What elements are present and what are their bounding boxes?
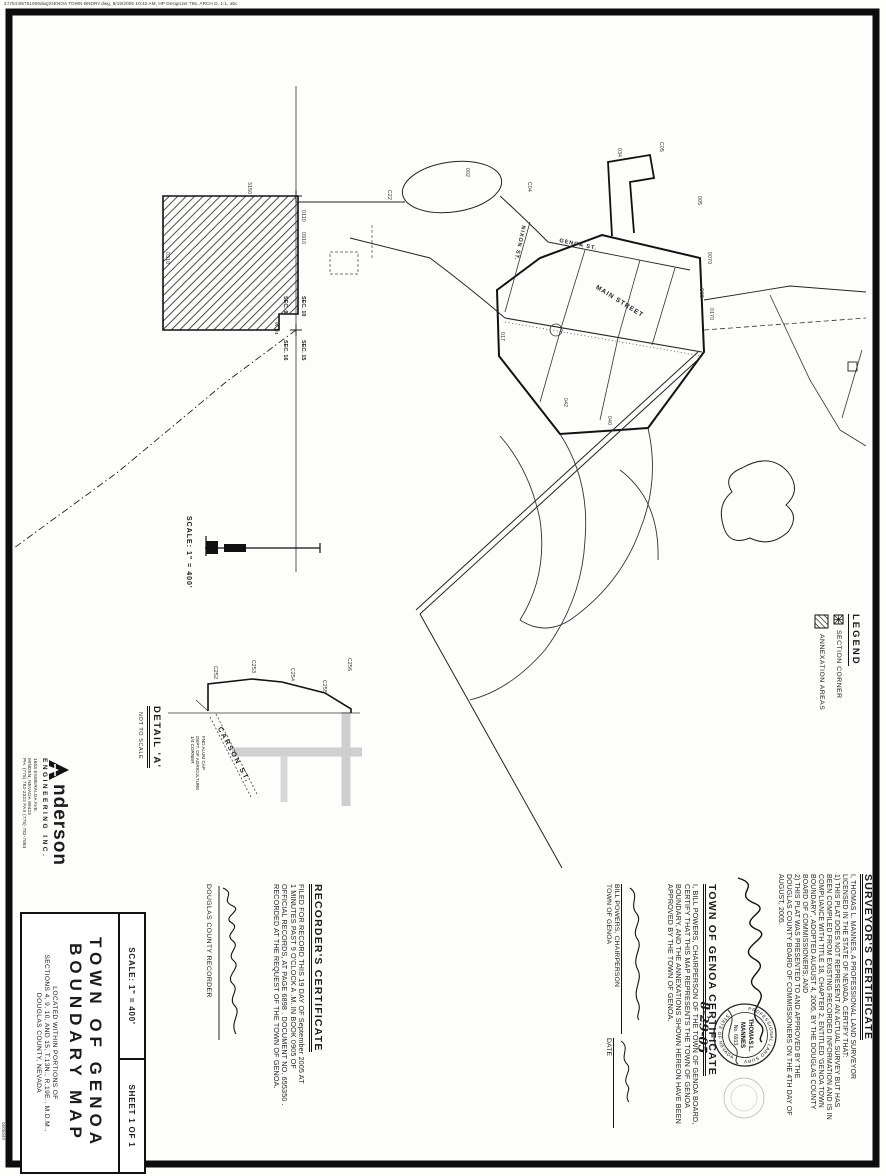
course-tag: 034 xyxy=(616,148,622,157)
date-label: DATE xyxy=(604,1038,614,1128)
legend: LEGEND SECTION CORNER ANNEXATION AREAS xyxy=(814,614,866,722)
date-scribble xyxy=(617,1038,633,1108)
legend-item-section-corner: SECTION CORNER xyxy=(833,614,844,722)
subdivision-roads xyxy=(470,428,658,700)
certificate-line: DOUGLAS COUNTY BOARD OF COMMISSIONERS ON… xyxy=(784,874,792,1172)
certificate-line: RECORDED AT THE REQUEST OF THE TOWN OF G… xyxy=(271,884,280,1172)
west-boundary-road xyxy=(14,330,296,548)
east-road-dashed xyxy=(704,318,866,330)
oval-track xyxy=(399,155,505,218)
faint-stamp xyxy=(722,1076,766,1125)
certificate-line: I, THOMAS L. MANNES, A PROFESSIONAL LAND… xyxy=(848,874,856,1172)
firm-address-line: MINDEN, NEVADA 89423 xyxy=(27,758,33,912)
detail-a-scale: NOT TO SCALE xyxy=(137,712,143,759)
course-tag: 0310 xyxy=(164,252,170,264)
detail-course-tag: C253 xyxy=(250,660,256,673)
course-tag: C09 xyxy=(698,288,704,298)
course-tag: 042 xyxy=(562,398,568,407)
map-subtitle-line: DOUGLAS COUNTY, NEVADA xyxy=(35,954,43,1131)
detail-course-tag: C256 xyxy=(346,658,352,671)
note-line: DEPT. OF AGRICULTURE xyxy=(195,736,201,816)
east-hill-roads xyxy=(770,295,866,446)
course-tag: 3150 xyxy=(246,182,252,194)
annexation-parcel xyxy=(163,196,298,330)
highway-south xyxy=(420,614,562,868)
recorder-certificate-title: RECORDER'S CERTIFICATE xyxy=(309,884,322,1052)
recorder-signature xyxy=(215,884,245,1044)
detail-a-title: DETAIL 'A' xyxy=(147,706,162,768)
legend-title: LEGEND xyxy=(848,614,861,666)
section-label-15: SEC. 15 xyxy=(300,340,306,360)
stamp-number: No. 6913 xyxy=(732,1025,738,1046)
certificate-line: 1) THIS PLAT DOES NOT REPRESENT AN ACTUA… xyxy=(832,874,840,1172)
stamp-name-2: MANNES xyxy=(739,1022,745,1048)
certificate-line: CERTIFY THAT THIS MAP REPRESENTS THE TOW… xyxy=(682,884,691,1174)
map-subtitle-line: LOCATED WITHIN PORTIONS OF xyxy=(51,954,59,1131)
note-line: FND ALUM CAP xyxy=(200,736,206,816)
town-boundary-north-leg xyxy=(608,155,654,236)
detail-course-tag: C254 xyxy=(289,668,295,681)
map-sheet: 2:\751\05751006dwg\GENOA TOWN BNDRY.dwg,… xyxy=(0,0,886,1176)
certificate-line: OFFICIAL RECORDS, AT PAGE 6898 . DOCUMEN… xyxy=(280,884,289,1172)
course-tag: 0170 xyxy=(708,308,714,320)
course-tag: 017 xyxy=(499,332,505,341)
section-label-9: SEC. 9 xyxy=(282,296,288,313)
map-subtitle: LOCATED WITHIN PORTIONS OF SECTIONS 4, 9… xyxy=(35,954,59,1131)
legend-item-label: SECTION CORNER xyxy=(835,630,842,699)
section-label-10: SEC. 10 xyxy=(300,296,306,316)
main-street-centerline xyxy=(505,322,702,356)
main-street-line xyxy=(505,318,702,352)
recorder-certificate: RECORDER'S CERTIFICATE FILED FOR RECORD … xyxy=(204,884,322,1172)
firm-address-line: PH. (775) 782-2322 FAX (775) 782-7084 xyxy=(21,758,27,912)
course-tag: 0070 xyxy=(706,252,712,264)
east-structure xyxy=(848,362,857,371)
course-tag: 040 xyxy=(606,416,612,425)
sheet-number: SHEET 1 OF 1 xyxy=(120,1060,144,1172)
course-tag: C22 xyxy=(386,190,392,200)
chairperson-signer-name: BILL POWERS, CHAIRPERSON TOWN OF GENOA xyxy=(604,884,622,1034)
title-block-strip: SCALE: 1" = 400' SHEET 1 OF 1 xyxy=(118,914,144,1172)
firm-address: 1603 ESMERALDA AVE. MINDEN, NEVADA 89423… xyxy=(21,758,38,912)
highway-line-2 xyxy=(416,352,698,610)
annexation-hatch-icon xyxy=(814,614,829,629)
firm-logo-icon xyxy=(48,758,70,782)
certificate-line: BEEN COMPILED FROM EXISTING RECORDED INF… xyxy=(824,874,832,1172)
map-scale: SCALE: 1" = 400' xyxy=(120,914,144,1060)
certificate-line: 1 MINUTES PAST 9 O'CLOCK A .M. IN BOOK 0… xyxy=(288,884,297,1172)
firm-tagline: ENGINEERING INC. xyxy=(41,758,48,912)
west-road xyxy=(350,238,505,318)
signer-line: BILL POWERS, CHAIRPERSON xyxy=(612,884,620,1034)
certificate-line: COMPLIANCE WITH TITLE 18, CHAPTER 2, ENT… xyxy=(816,874,824,1172)
course-tag: 005 xyxy=(696,196,702,205)
detail-course-tag: C252 xyxy=(212,666,218,679)
certificate-line: BOUNDARY, AND THE ANNEXATIONS SHOWN HERE… xyxy=(674,884,683,1174)
detail-course-tag: C255 xyxy=(321,680,327,693)
scale-bar xyxy=(205,536,320,556)
map-title-line: BOUNDARY MAP xyxy=(66,937,86,1149)
chairperson-signature xyxy=(625,884,643,1024)
course-tag: C04 xyxy=(526,182,532,192)
section-corner-icon xyxy=(833,614,844,625)
certificate-line: 2) THIS PLAT WAS PRESENTED TO AND APPROV… xyxy=(792,874,800,1172)
course-tag: 002 xyxy=(464,168,470,177)
east-road xyxy=(704,286,866,300)
surveyor-stamp: PROFESSIONAL LAND SURVEYOR STATE OF NEVA… xyxy=(712,1002,778,1073)
map-title-line: TOWN OF GENOA xyxy=(86,937,106,1149)
certificate-line: LICENSED IN THE STATE OF NEVADA, CERTIFY… xyxy=(840,874,848,1172)
stamp-name-1: THOMAS L. xyxy=(747,1019,753,1052)
map-title: TOWN OF GENOA BOUNDARY MAP xyxy=(66,937,106,1149)
firm-block: nderson ENGINEERING INC. 1603 ESMERALDA … xyxy=(21,758,70,912)
west-parcels xyxy=(330,225,372,274)
legend-item-annexation: ANNEXATION AREAS xyxy=(814,614,829,722)
course-tag: 0110 xyxy=(300,210,306,222)
scale-label: SCALE: 1" = 400' xyxy=(185,516,192,589)
pond-outline xyxy=(721,461,794,542)
surveyor-certificate-title: SURVEYOR'S CERTIFICATE xyxy=(860,874,872,1040)
course-tag: 0910 xyxy=(300,232,306,244)
certificate-line: BOUNDARY', ADOPTED AUGUST 4, 2005, BY TH… xyxy=(808,874,816,1172)
title-block: SCALE: 1" = 400' SHEET 1 OF 1 TOWN OF GE… xyxy=(20,912,146,1174)
note-line: 1/4 CORNER xyxy=(189,736,195,816)
certificate-line: BOARD OF COMMISSIONERS; AND xyxy=(800,874,808,1172)
legend-item-label: ANNEXATION AREAS xyxy=(818,634,825,710)
highway-line-1 xyxy=(420,356,702,614)
course-tag: C05 xyxy=(658,142,664,152)
detail-monument-note: FND ALUM CAP DEPT. OF AGRICULTURE 1/4 CO… xyxy=(189,736,206,816)
handwritten-date: 8-29-05 xyxy=(695,1001,712,1053)
certificate-line: APPROVED BY THE TOWN OF GENOA. xyxy=(665,884,674,1174)
title-block-main: TOWN OF GENOA BOUNDARY MAP LOCATED WITHI… xyxy=(22,914,118,1172)
signer-line: TOWN OF GENOA xyxy=(604,884,612,1034)
cross-streets xyxy=(540,250,675,420)
recorder-label: DOUGLAS COUNTY RECORDER xyxy=(204,884,213,1084)
section-label-w14: W 1/4 xyxy=(273,322,278,335)
section-label-16: SEC. 16 xyxy=(282,340,288,360)
map-subtitle-line: SECTIONS 4, 9, 10, AND 15, T.13N., R.19E… xyxy=(43,954,51,1131)
firm-name: nderson xyxy=(49,784,69,866)
certificate-line: FILED FOR RECORD THIS 19 DAY OF Septembe… xyxy=(297,884,306,1172)
firm-address-line: 1603 ESMERALDA AVE. xyxy=(32,758,38,912)
